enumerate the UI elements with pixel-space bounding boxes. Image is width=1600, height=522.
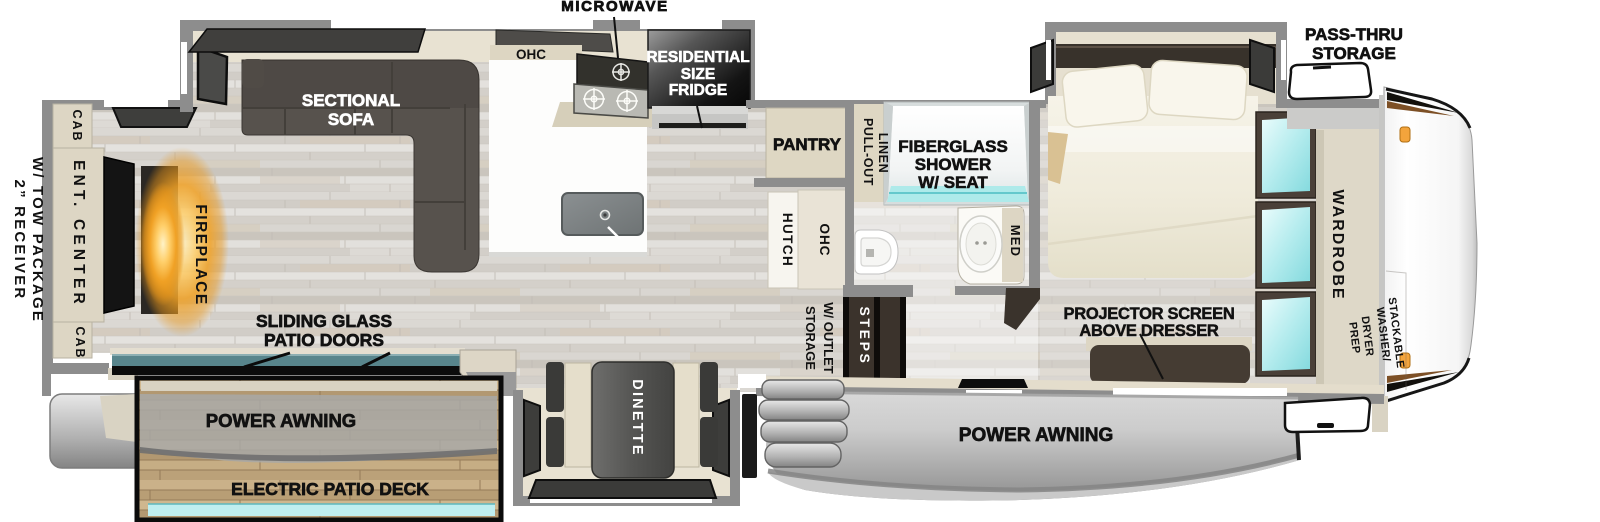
svg-text:W/ TOW PACKAGE: W/ TOW PACKAGE [29, 157, 46, 323]
svg-text:HUTCH: HUTCH [780, 213, 795, 267]
svg-text:SECTIONAL: SECTIONAL [302, 91, 400, 110]
svg-text:FRIDGE: FRIDGE [669, 82, 728, 99]
svg-text:CAB: CAB [70, 109, 84, 142]
svg-text:PATIO DOORS: PATIO DOORS [264, 330, 384, 350]
svg-text:ENT. CENTER: ENT. CENTER [70, 160, 87, 308]
svg-text:FIREPLACE: FIREPLACE [192, 204, 209, 305]
svg-text:ELECTRIC PATIO DECK: ELECTRIC PATIO DECK [231, 479, 429, 499]
svg-text:PROJECTOR SCREEN: PROJECTOR SCREEN [1064, 305, 1235, 323]
svg-text:WARDROBE: WARDROBE [1329, 189, 1346, 300]
svg-text:SLIDING GLASS: SLIDING GLASS [256, 311, 392, 331]
svg-text:FIBERGLASS: FIBERGLASS [898, 137, 1008, 156]
svg-text:POWER AWNING: POWER AWNING [959, 425, 1113, 446]
svg-text:W/ OUTLET: W/ OUTLET [821, 302, 836, 374]
svg-text:MED: MED [1008, 225, 1023, 258]
svg-text:PASS-THRU: PASS-THRU [1305, 25, 1403, 44]
svg-text:POWER AWNING: POWER AWNING [206, 410, 356, 431]
svg-text:W/ SEAT: W/ SEAT [918, 173, 988, 192]
svg-text:STEPS: STEPS [857, 307, 873, 366]
svg-text:LINEN: LINEN [876, 133, 890, 174]
svg-text:RESIDENTIAL: RESIDENTIAL [646, 49, 749, 66]
svg-text:SIZE: SIZE [681, 66, 715, 83]
svg-text:MICROWAVE: MICROWAVE [561, 0, 668, 15]
svg-text:PANTRY: PANTRY [773, 135, 842, 154]
svg-text:STORAGE: STORAGE [803, 306, 818, 370]
svg-text:SOFA: SOFA [328, 110, 374, 129]
svg-text:2” RECEIVER: 2” RECEIVER [11, 180, 28, 301]
svg-text:SHOWER: SHOWER [915, 155, 992, 174]
svg-text:CAB: CAB [73, 326, 87, 359]
svg-text:DINETTE: DINETTE [629, 379, 645, 456]
svg-text:OHC: OHC [817, 224, 832, 257]
svg-text:OHC: OHC [516, 47, 546, 62]
svg-text:PULL-OUT: PULL-OUT [861, 118, 875, 186]
svg-text:STORAGE: STORAGE [1312, 44, 1396, 63]
svg-text:ABOVE DRESSER: ABOVE DRESSER [1079, 322, 1219, 340]
